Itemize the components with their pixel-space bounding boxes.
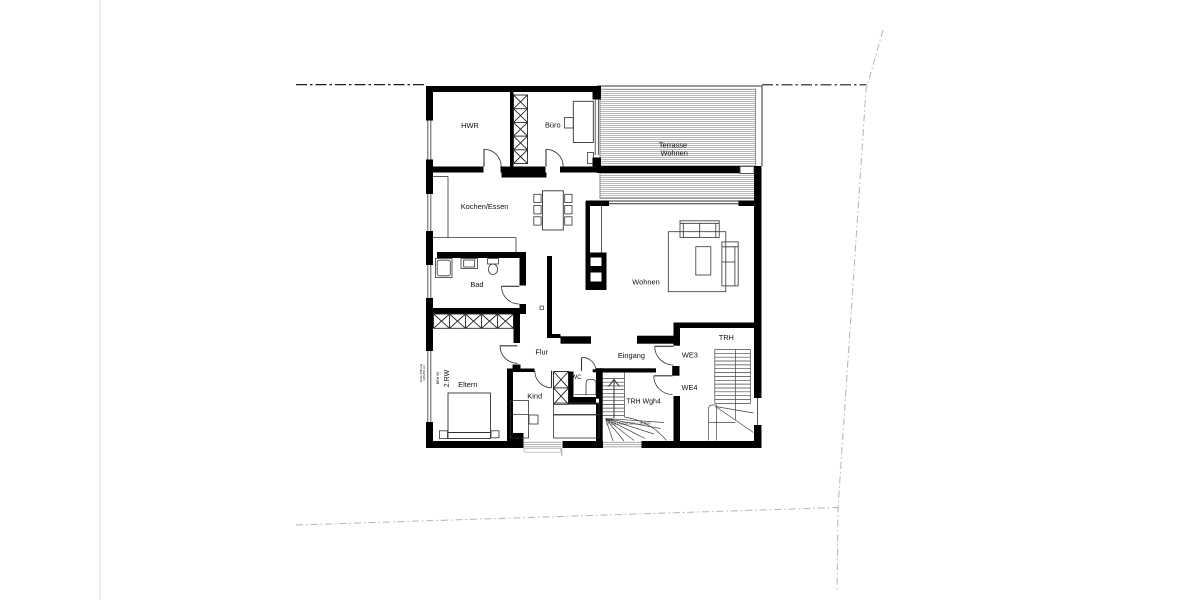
svg-text:Kind: Kind xyxy=(527,392,542,401)
svg-text:Wohnen: Wohnen xyxy=(632,278,659,287)
svg-text:Wohnen: Wohnen xyxy=(660,149,687,158)
svg-text:HWR: HWR xyxy=(461,121,479,130)
svg-text:TRH: TRH xyxy=(719,333,734,342)
svg-text:Bad: Bad xyxy=(470,280,483,289)
svg-text:17 Stg 17,6/28,0cm + 26,0cm: 17 Stg 17,6/28,0cm + 26,0cm xyxy=(606,422,651,426)
svg-text:WC: WC xyxy=(572,375,583,381)
svg-text:WE3: WE3 xyxy=(682,351,698,360)
svg-text:TRH Wgh4: TRH Wgh4 xyxy=(626,398,661,405)
svg-text:BRH 90: BRH 90 xyxy=(436,372,440,385)
svg-text:Eingang: Eingang xyxy=(618,351,645,360)
svg-text:2.RW: 2.RW xyxy=(444,369,451,387)
svg-text:Flur: Flur xyxy=(535,347,548,356)
svg-text:Kochen/Essen: Kochen/Essen xyxy=(461,202,509,211)
svg-text:Eltern: Eltern xyxy=(458,380,477,389)
svg-text:125/250 cm: 125/250 cm xyxy=(422,365,426,381)
svg-text:WE4: WE4 xyxy=(681,383,697,392)
svg-text:Büro: Büro xyxy=(545,121,561,130)
